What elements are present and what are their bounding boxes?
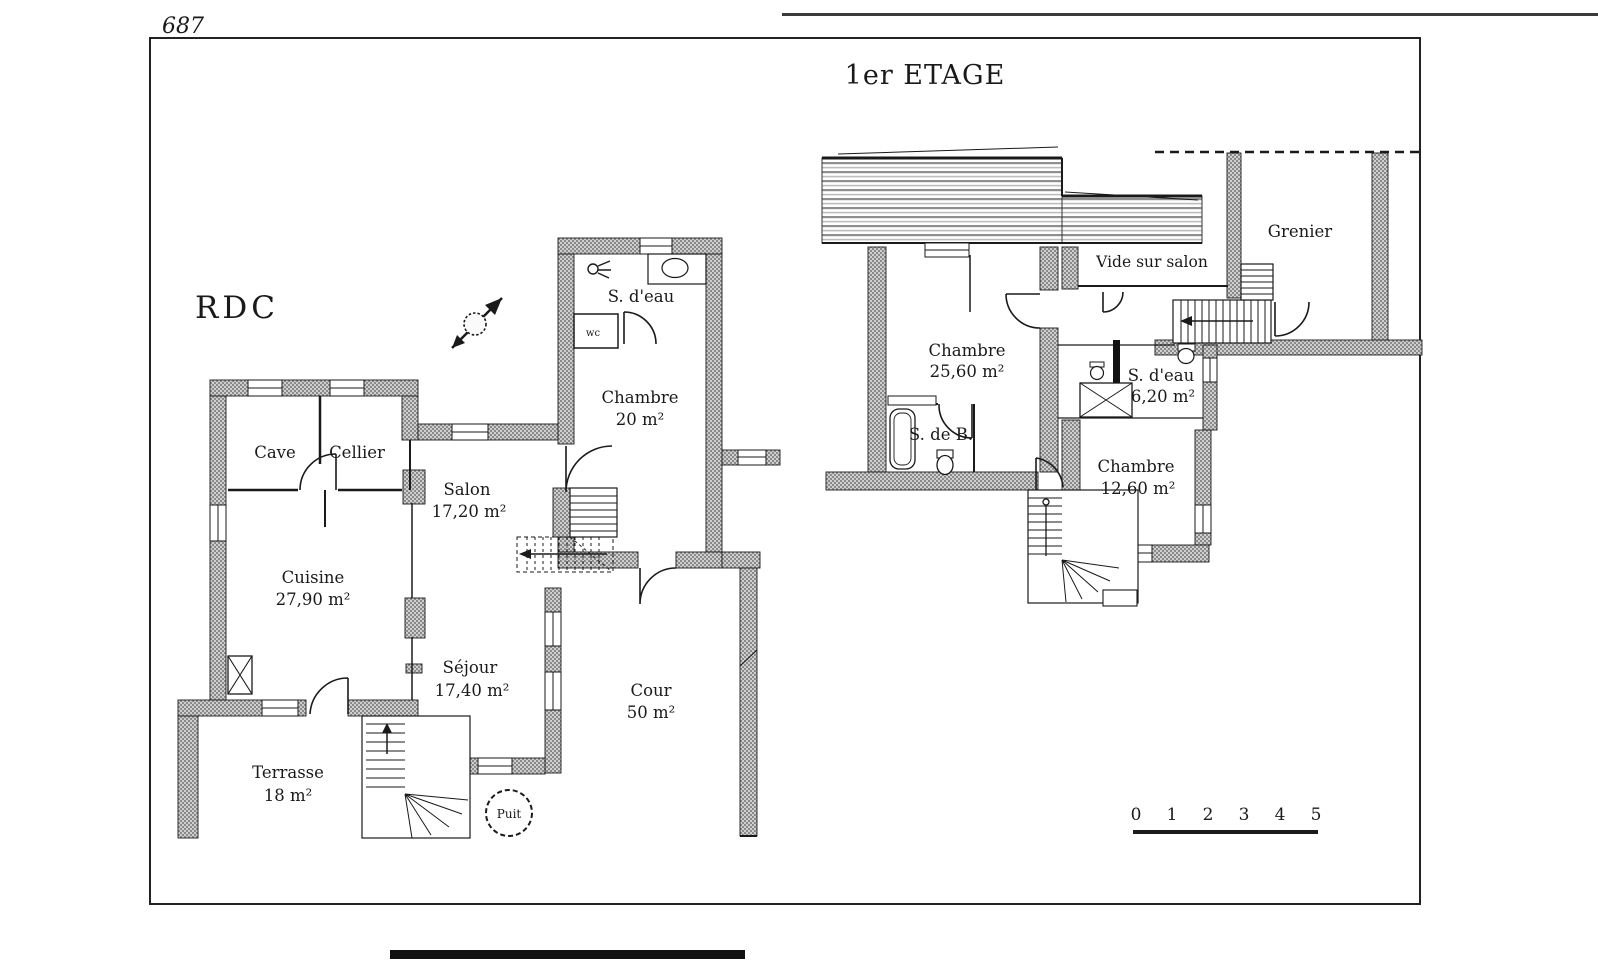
room-label-sdeau-rdc: S. d'eau	[608, 287, 675, 306]
room-label-chambre2: Chambre	[1098, 457, 1175, 476]
toilet-etage-fixture	[1178, 344, 1195, 364]
sdeau-etage-door	[1103, 292, 1123, 312]
scale-tick-1: 1	[1167, 805, 1178, 825]
room-label-grenier: Grenier	[1268, 222, 1333, 241]
sdeau-door	[624, 312, 656, 344]
room-area-cour: 50 m²	[627, 703, 676, 722]
terrasse-door	[310, 678, 348, 714]
floorplan-page: 687	[0, 0, 1598, 962]
room-label-chambre1: Chambre	[929, 341, 1006, 360]
scale-tick-5: 5	[1311, 805, 1322, 825]
room-label-sejour: Séjour	[443, 658, 498, 677]
etage-plan: 1er ETAGE	[822, 60, 1422, 606]
room-area-sdeau-etage: 6,20 m²	[1131, 387, 1195, 406]
north-arrow-icon	[452, 298, 502, 348]
shower-fixture	[1080, 383, 1132, 417]
scale-tick-4: 4	[1275, 805, 1286, 825]
roof-hatch	[822, 147, 1202, 243]
top-page-edge-line	[782, 13, 1598, 16]
scale-tick-3: 3	[1239, 805, 1250, 825]
room-label-terrasse: Terrasse	[252, 763, 324, 782]
room-area-chambre2: 12,60 m²	[1101, 479, 1176, 498]
etage-staircase	[1173, 264, 1273, 343]
room-label-cuisine: Cuisine	[282, 568, 345, 587]
scale-tick-0: 0	[1131, 805, 1142, 825]
salon-hall-door	[566, 446, 612, 492]
toilet-sdb-fixture	[937, 450, 953, 475]
room-label-salon: Salon	[444, 480, 491, 499]
wc-cabin: wc	[574, 314, 618, 348]
sink-fixture	[648, 254, 706, 284]
room-area-chambre1: 25,60 m²	[930, 362, 1005, 381]
rdc-title: RDC	[195, 290, 279, 326]
room-label-vide: Vide sur salon	[1095, 253, 1208, 271]
page-number: 687	[162, 14, 204, 39]
wc-label: wc	[586, 328, 601, 339]
room-label-sdb: S. de B.	[909, 425, 973, 444]
well-symbol: Puit	[486, 790, 532, 836]
rdc-winding-staircase	[362, 716, 470, 838]
room-label-cave: Cave	[254, 443, 296, 462]
chambre1-door	[1006, 294, 1040, 328]
electrical-panel	[228, 656, 252, 694]
etage-winding-staircase	[1028, 490, 1138, 606]
room-area-chambre-rdc: 20 m²	[616, 410, 665, 429]
stair-direction-arrow	[519, 549, 531, 559]
room-area-cuisine: 27,90 m²	[276, 590, 351, 609]
bottom-page-edge-bar	[390, 950, 745, 959]
room-label-cour: Cour	[630, 681, 671, 700]
room-label-sdeau-etage: S. d'eau	[1128, 366, 1195, 385]
cour-door	[640, 568, 676, 604]
room-area-sejour: 17,40 m²	[435, 681, 510, 700]
grenier-door	[1275, 302, 1309, 336]
room-area-salon: 17,20 m²	[432, 502, 507, 521]
rdc-plan: wc Puit R	[178, 238, 780, 838]
well-label: Puit	[497, 807, 522, 821]
room-label-chambre-rdc: Chambre	[602, 388, 679, 407]
floorplan-canvas: 687	[0, 0, 1598, 962]
scale-bar: 0 1 2 3 4 5	[1131, 805, 1322, 832]
room-area-terrasse: 18 m²	[264, 786, 313, 805]
etage-title: 1er ETAGE	[845, 60, 1006, 91]
room-label-cellier: Cellier	[329, 443, 385, 462]
washbasin-fixture	[1090, 362, 1104, 380]
shower-head-icon	[588, 261, 611, 278]
scale-tick-2: 2	[1203, 805, 1214, 825]
